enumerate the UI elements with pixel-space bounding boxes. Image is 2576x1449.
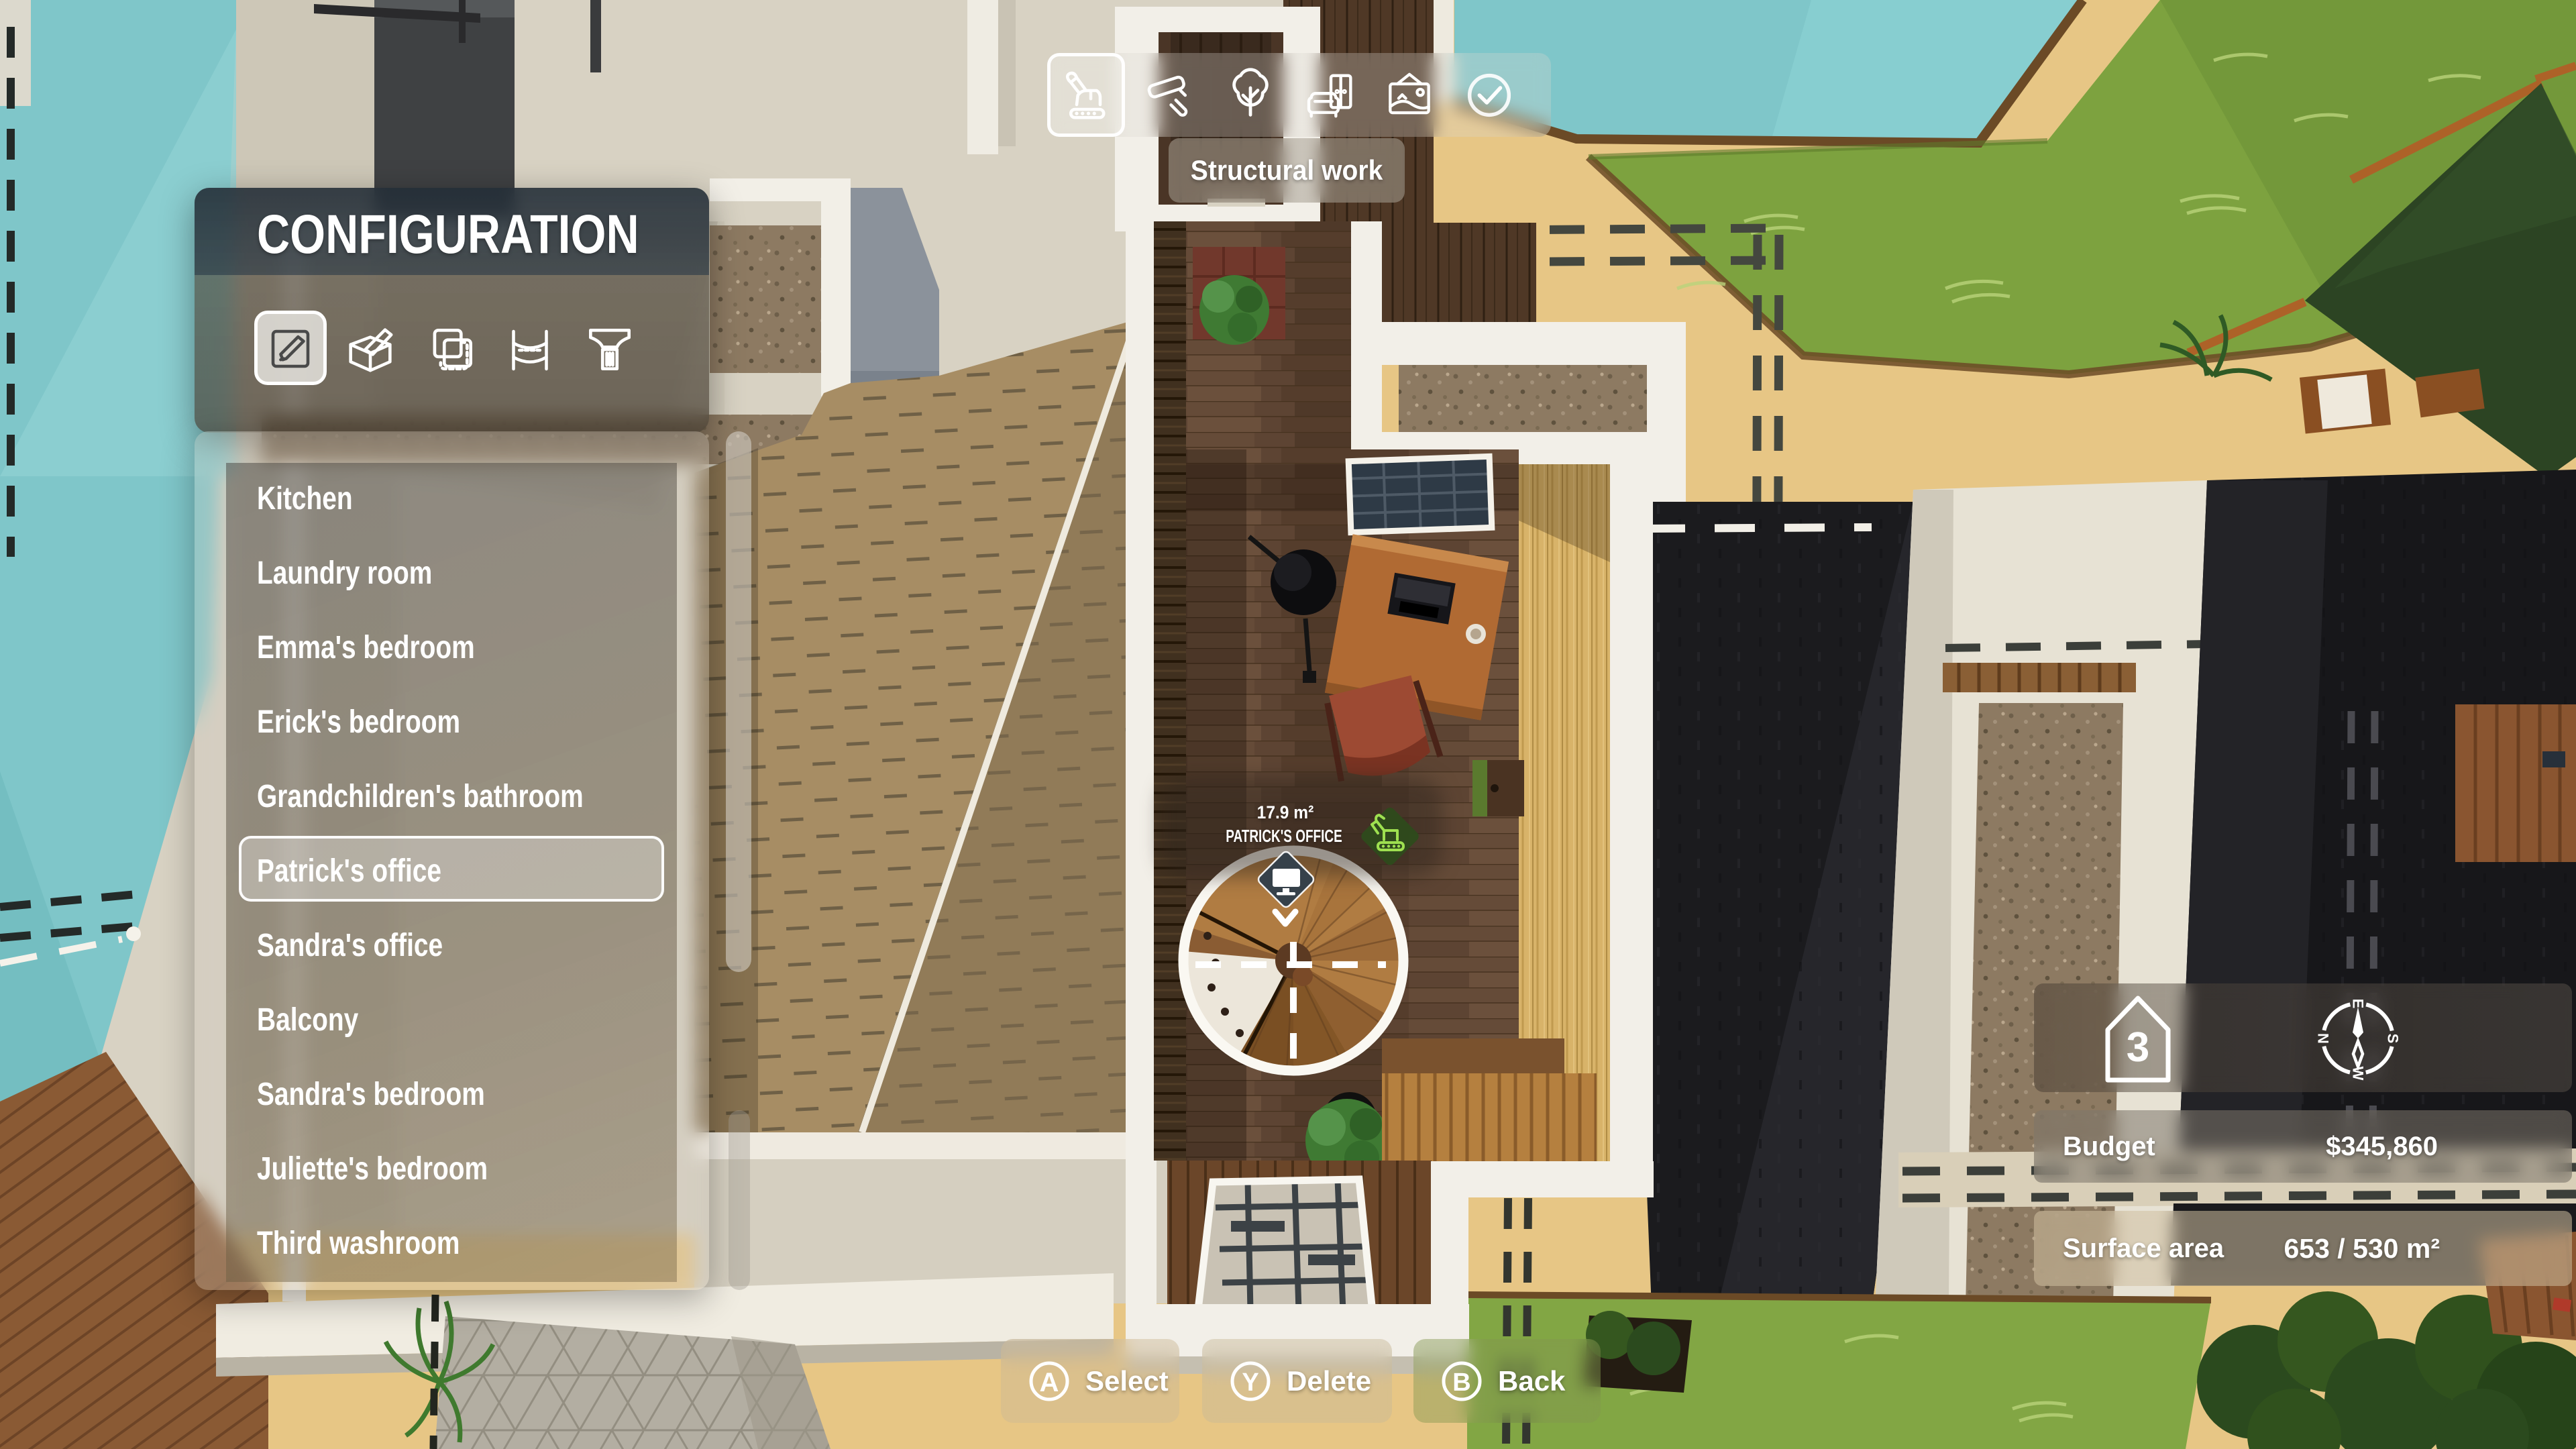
svg-text:S: S [2385,1034,2402,1044]
svg-text:W: W [2350,1067,2367,1081]
svg-text:N: N [2315,1033,2332,1044]
svg-text:Y: Y [1242,1368,1258,1397]
svg-text:A: A [1040,1368,1059,1397]
svg-text:B: B [1452,1368,1470,1397]
svg-text:E: E [2350,999,2367,1009]
svg-text:3: 3 [2127,1024,2149,1071]
